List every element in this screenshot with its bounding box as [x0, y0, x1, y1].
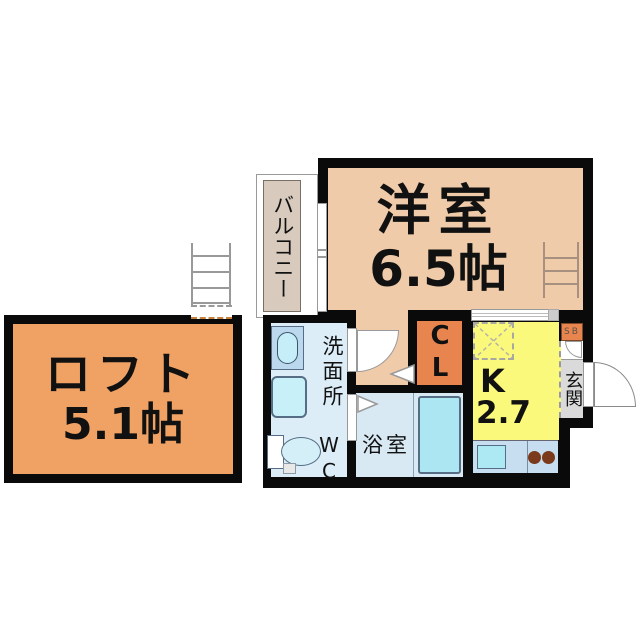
shoebox-label: SB: [564, 327, 580, 337]
washroom-label: 洗面所: [317, 335, 347, 410]
ladder-junction: [191, 305, 232, 319]
loft-room: ロフト 5.1帖: [4, 315, 242, 483]
entrance-boundary: [557, 341, 561, 418]
stove-burner-icon: [528, 451, 541, 464]
loft-label: ロフト: [45, 349, 201, 401]
shoebox: SB: [561, 323, 583, 341]
stove-burner-icon: [542, 451, 555, 464]
hallway-passage-arrow-icon: [389, 364, 415, 384]
vanity-icon: [271, 326, 304, 370]
kitchen-counter: [473, 440, 558, 473]
bathroom-door-icon: [347, 394, 357, 441]
wall-cap: [548, 309, 559, 321]
kitchen-window-icon: [471, 309, 549, 321]
bathroom-label: 浴室: [362, 429, 410, 459]
washing-machine-icon: [271, 376, 307, 418]
entrance-label: 玄関: [561, 360, 583, 418]
balcony-label: バルコニー: [264, 181, 300, 311]
western-door-panel-icon: [347, 328, 357, 372]
entrance: 玄関: [561, 359, 583, 418]
bathtub-icon: [418, 396, 461, 474]
western-room-label: 洋室: [377, 181, 501, 241]
balcony-strip: バルコニー: [263, 180, 301, 312]
bathroom-door-arrow-icon: [357, 395, 379, 413]
front-door-panel-icon: [583, 362, 594, 407]
kitchen-sink-icon: [477, 445, 506, 469]
front-door-arc-icon: [594, 362, 636, 407]
fridge-space-icon: [473, 322, 514, 360]
kitchen: K 2.7帖: [473, 322, 559, 440]
western-room-size: 6.5帖: [369, 241, 508, 297]
floor-plan: バルコニー 洋室 6.5帖 洗面所 WC: [0, 0, 640, 640]
western-room: 洋室 6.5帖: [328, 168, 583, 310]
loft-ladder-icon: [543, 242, 579, 298]
closet: CL: [417, 321, 462, 385]
washroom: 洗面所 WC: [271, 323, 347, 477]
balcony-window-icon: [317, 203, 327, 312]
loft-size: 5.1帖: [62, 400, 184, 449]
toilet-icon: [267, 433, 325, 485]
closet-label: CL: [417, 321, 462, 385]
